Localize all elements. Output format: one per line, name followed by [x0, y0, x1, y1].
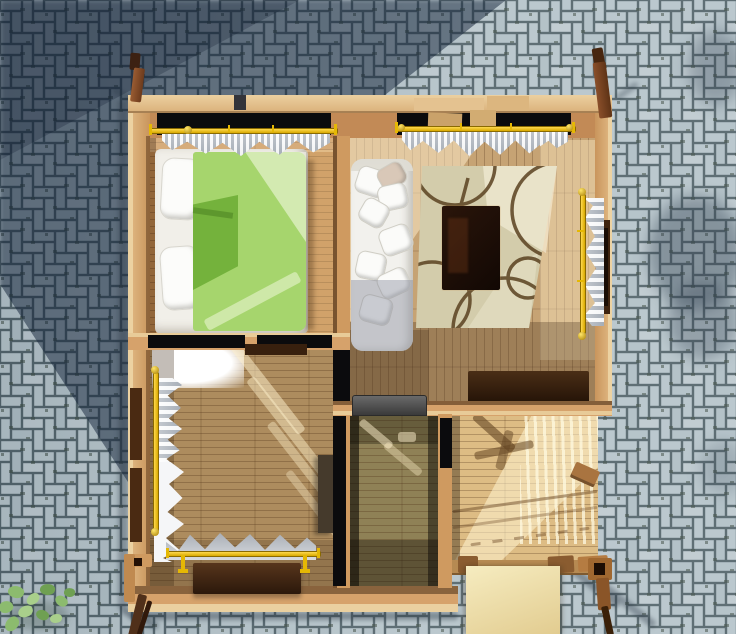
- wall-shade: [452, 414, 460, 566]
- rod-bracket: [272, 125, 274, 132]
- rod-cap: [334, 124, 337, 135]
- rod-bracket: [577, 280, 584, 282]
- rod-finial: [184, 126, 192, 134]
- curtain-rod-living: [396, 126, 576, 132]
- rod-bracket: [510, 123, 512, 130]
- room-bedroom-floor: [148, 136, 334, 335]
- room-living-floor: [349, 136, 595, 403]
- rod-cap: [317, 548, 320, 558]
- corner-post-bottom-right-strut: [601, 606, 614, 634]
- sun-streak: [383, 441, 423, 477]
- rod-cap: [166, 548, 169, 558]
- door-opening-hall-deck: [440, 418, 452, 468]
- wall-bottom-lip: [128, 604, 458, 612]
- wall-center-lower-shadow: [333, 414, 346, 586]
- corner-post-bottom-right-hole: [594, 563, 605, 575]
- rod-finial: [398, 124, 405, 131]
- rod-finial: [578, 188, 586, 196]
- curtain-rod-second-bottom: [167, 551, 321, 557]
- window-frame-left: [130, 388, 142, 460]
- rod-foot: [178, 569, 188, 573]
- rod-finial: [151, 366, 159, 374]
- desk: [468, 371, 589, 403]
- rod-bracket: [460, 123, 462, 130]
- floor-shade: [349, 540, 438, 588]
- window-frame-left: [130, 468, 142, 542]
- room-hallway-floor: [349, 414, 438, 588]
- bed-shadow: [306, 160, 314, 330]
- stove: [352, 395, 427, 416]
- corner-post-bottom-left-hole: [134, 558, 142, 566]
- sofa-shade: [351, 280, 413, 351]
- render-canvas: [0, 0, 736, 634]
- sun-spot: [398, 432, 416, 442]
- deck-floor: [452, 414, 598, 566]
- rod-foot: [300, 569, 310, 573]
- curtain-rod-living-right: [580, 194, 586, 334]
- rod-finial: [151, 528, 159, 536]
- opening-mid-wall: [148, 335, 245, 348]
- rod-bracket: [577, 230, 584, 232]
- media-table-reflection: [448, 218, 468, 273]
- curtain-rod-bedroom: [150, 128, 338, 134]
- curtain-rod-second-left: [153, 372, 159, 532]
- rod-finial: [566, 124, 573, 131]
- dark-table: [193, 563, 301, 594]
- wall-top-notch: [234, 95, 246, 110]
- rod-bracket: [228, 125, 230, 132]
- roof-board: [487, 96, 529, 111]
- lintel-shelf: [245, 344, 307, 355]
- rod-cap: [149, 124, 152, 135]
- rod-finial: [578, 332, 586, 340]
- house: [0, 0, 736, 634]
- wall-cabinet: [318, 455, 334, 533]
- wall-left-inner-edge: [146, 136, 150, 588]
- plywood-steps: [466, 566, 560, 634]
